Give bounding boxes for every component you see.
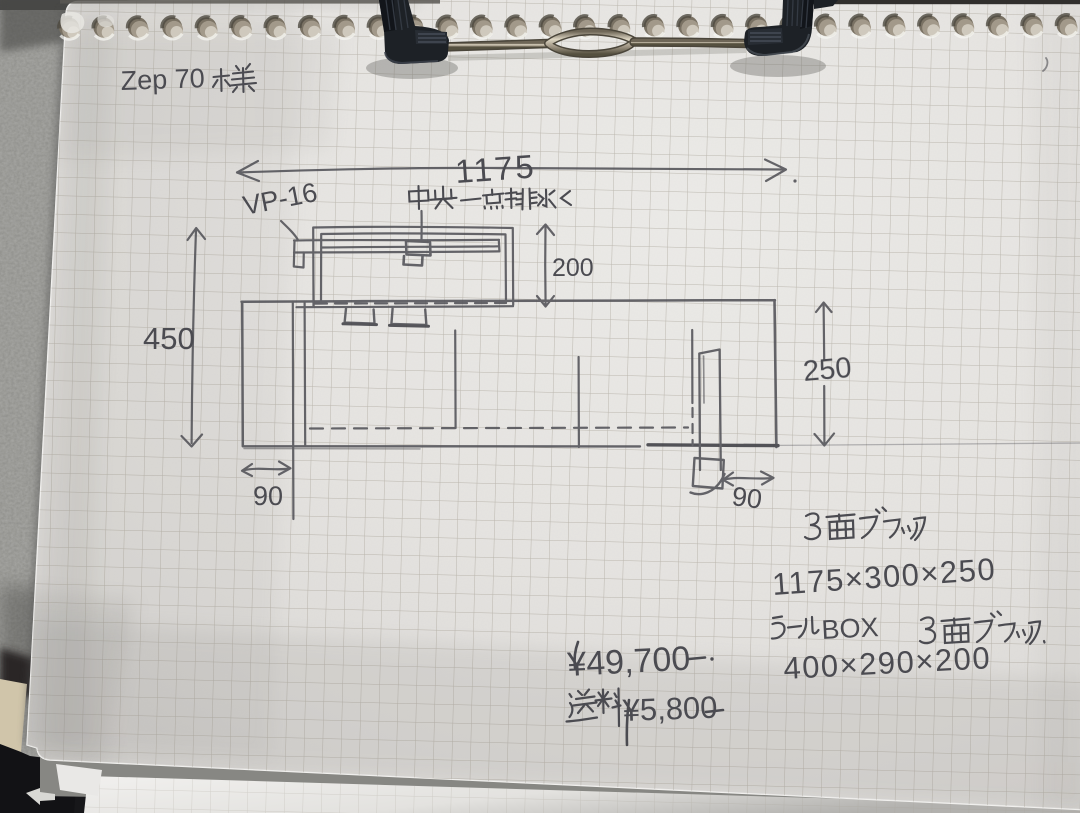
svg-text:250: 250 (802, 352, 853, 388)
svg-text:1175: 1175 (454, 147, 537, 190)
svg-text:90: 90 (730, 481, 763, 514)
svg-text:450: 450 (143, 321, 195, 356)
svg-text:90: 90 (253, 481, 283, 511)
svg-text:BOX: BOX (821, 612, 880, 645)
svg-text:¥49,700: ¥49,700 (565, 640, 691, 684)
svg-text:Zep 70: Zep 70 (120, 63, 205, 96)
svg-text:200: 200 (552, 254, 594, 282)
svg-text:¥5,800: ¥5,800 (621, 690, 718, 728)
